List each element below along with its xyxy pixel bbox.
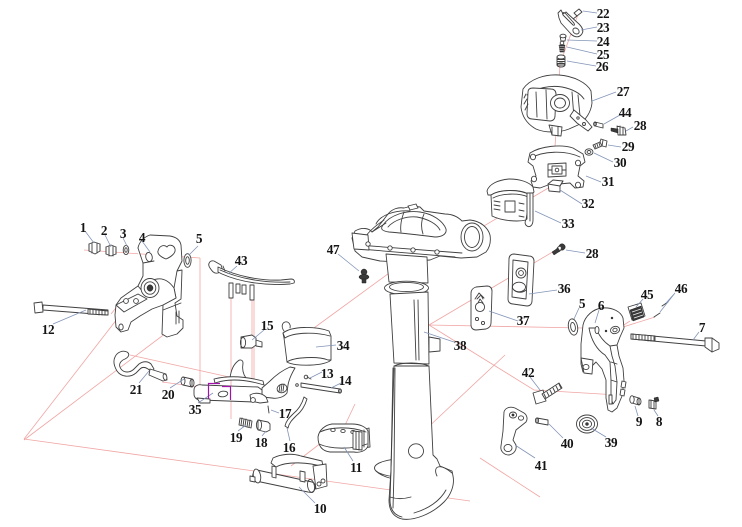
svg-text:34: 34 — [337, 338, 350, 353]
svg-text:17: 17 — [279, 406, 292, 421]
svg-text:12: 12 — [42, 322, 55, 337]
svg-text:19: 19 — [230, 430, 243, 445]
svg-text:43: 43 — [235, 253, 248, 268]
svg-text:26: 26 — [596, 59, 609, 74]
svg-text:1: 1 — [80, 220, 86, 235]
svg-text:14: 14 — [339, 373, 352, 388]
svg-text:5: 5 — [196, 231, 203, 246]
svg-text:31: 31 — [602, 174, 615, 189]
svg-text:23: 23 — [597, 20, 610, 35]
svg-text:28: 28 — [586, 246, 599, 261]
svg-text:27: 27 — [617, 84, 630, 99]
svg-text:8: 8 — [656, 414, 663, 429]
svg-text:44: 44 — [619, 105, 632, 120]
svg-text:20: 20 — [162, 387, 175, 402]
svg-text:32: 32 — [582, 196, 595, 211]
svg-text:35: 35 — [189, 402, 202, 417]
svg-text:36: 36 — [558, 281, 571, 296]
svg-text:7: 7 — [699, 320, 706, 335]
svg-text:29: 29 — [622, 139, 635, 154]
svg-text:15: 15 — [261, 318, 274, 333]
svg-text:39: 39 — [605, 435, 618, 450]
svg-text:40: 40 — [561, 436, 574, 451]
svg-text:2: 2 — [101, 223, 108, 238]
svg-text:4: 4 — [139, 230, 146, 245]
svg-text:5: 5 — [579, 296, 586, 311]
svg-text:16: 16 — [283, 440, 296, 455]
svg-text:3: 3 — [120, 226, 127, 241]
svg-text:21: 21 — [130, 382, 143, 397]
svg-text:28: 28 — [634, 118, 647, 133]
svg-text:38: 38 — [454, 338, 467, 353]
svg-text:47: 47 — [327, 242, 340, 257]
svg-text:13: 13 — [321, 366, 334, 381]
svg-text:33: 33 — [562, 216, 575, 231]
svg-text:46: 46 — [675, 281, 688, 296]
svg-text:41: 41 — [535, 458, 548, 473]
svg-text:30: 30 — [614, 155, 627, 170]
svg-text:45: 45 — [641, 287, 654, 302]
svg-text:10: 10 — [314, 501, 327, 516]
svg-text:6: 6 — [598, 298, 605, 313]
svg-text:18: 18 — [255, 435, 268, 450]
svg-text:9: 9 — [636, 414, 643, 429]
svg-text:42: 42 — [522, 365, 535, 380]
svg-text:22: 22 — [597, 6, 610, 21]
svg-text:37: 37 — [517, 313, 530, 328]
svg-text:11: 11 — [350, 460, 362, 475]
